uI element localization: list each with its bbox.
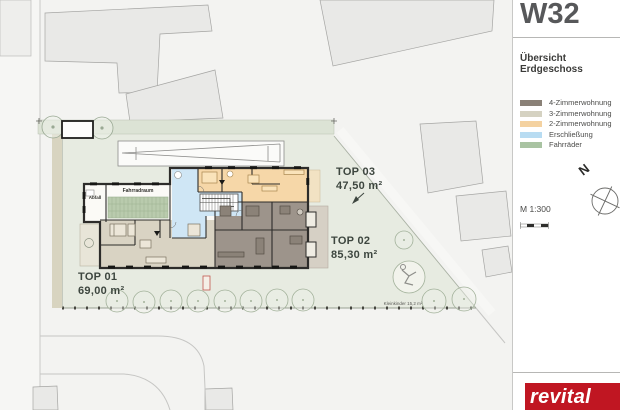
legend-item-2zi: 2-Zimmerwohnung: [520, 121, 612, 127]
legend-item-fahrraeder: Fahrräder: [520, 142, 612, 148]
legend: 4-Zimmerwohnung 3-Zimmerwohnung 2-Zimmer…: [520, 100, 612, 153]
staircase: [200, 194, 238, 211]
legend-swatch: [520, 100, 542, 106]
unit-id: TOP 02: [331, 235, 377, 249]
legend-item-3zi: 3-Zimmerwohnung: [520, 111, 612, 117]
site-plan-drawing: [0, 0, 512, 410]
waste-room-label: Abfall: [84, 195, 106, 200]
legend-swatch: [520, 121, 542, 127]
unit-id: TOP 03: [336, 166, 382, 180]
compass-icon: N: [573, 158, 620, 220]
divider-bottom: [513, 372, 620, 373]
floorplan-page: TOP 01 69,00 m² TOP 02 85,30 m² TOP 03 4…: [0, 0, 620, 410]
site-plan: TOP 01 69,00 m² TOP 02 85,30 m² TOP 03 4…: [0, 0, 512, 410]
north-indicator: N: [573, 158, 620, 225]
bike-room-label: Fahrradraum: [108, 188, 168, 194]
unit-id: TOP 01: [78, 271, 124, 285]
unit-area: 69,00 m²: [78, 285, 124, 299]
project-code: W32: [520, 0, 580, 31]
brand-logo: revital: [525, 383, 620, 410]
unit-label-top03: TOP 03 47,50 m²: [336, 166, 382, 193]
plan-title: Übersicht Erdgeschoss: [520, 53, 620, 75]
legend-item-4zi: 4-Zimmerwohnung: [520, 100, 612, 106]
scale-label: M 1:300: [520, 204, 551, 214]
legend-item-erschliessung: Erschließung: [520, 132, 612, 138]
playground-label: Kleinkinder 15,2 m²: [381, 301, 425, 306]
legend-swatch: [520, 132, 542, 138]
legend-label: 3-Zimmerwohnung: [549, 111, 612, 117]
unit-label-top01: TOP 01 69,00 m²: [78, 271, 124, 298]
legend-label: Erschließung: [549, 132, 593, 138]
legend-label: 2-Zimmerwohnung: [549, 121, 612, 127]
divider-top: [513, 37, 620, 38]
unit-area: 85,30 m²: [331, 249, 377, 263]
legend-label: 4-Zimmerwohnung: [549, 100, 612, 106]
unit-area: 47,50 m²: [336, 180, 382, 194]
unit-label-top02: TOP 02 85,30 m²: [331, 235, 377, 262]
playground: [393, 261, 425, 293]
legend-swatch: [520, 142, 542, 148]
scale-bar-icon: [520, 217, 554, 235]
bike-shelter: [62, 121, 93, 138]
north-label: N: [576, 161, 593, 179]
legend-label: Fahrräder: [549, 142, 582, 148]
roof-outline: [118, 141, 284, 166]
bike-room: [108, 197, 168, 218]
info-panel: W32 Übersicht Erdgeschoss 4-Zimmerwohnun…: [512, 0, 620, 410]
legend-swatch: [520, 111, 542, 117]
